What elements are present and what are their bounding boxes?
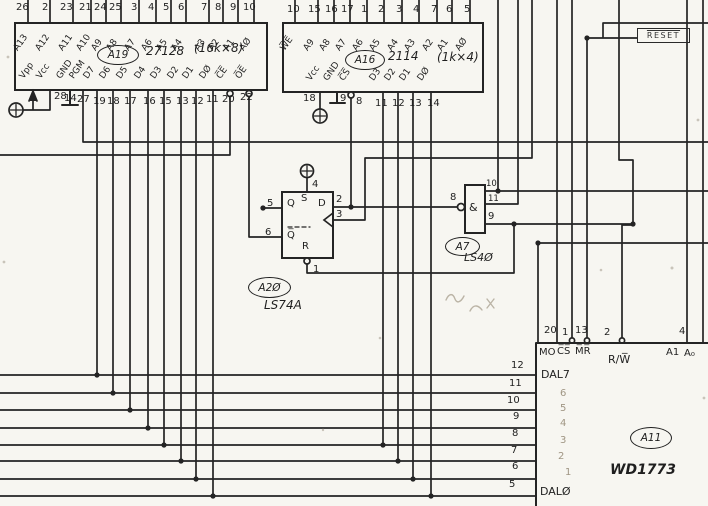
eprom-ref: A19 bbox=[97, 45, 139, 65]
ram-data-nets bbox=[383, 92, 431, 496]
pin-label: A1 bbox=[666, 348, 679, 358]
power-plus-icon bbox=[301, 165, 314, 178]
pin-number: 10 bbox=[287, 5, 300, 15]
pin-number: 4 bbox=[148, 3, 154, 13]
flipflop-part: LS74A bbox=[264, 299, 302, 311]
rw-net bbox=[619, 0, 633, 338]
eprom-part: 27128 bbox=[146, 45, 184, 57]
pin-number: 3 bbox=[336, 210, 342, 220]
pin-number: 16 bbox=[325, 5, 338, 15]
pin-number: 19 bbox=[93, 97, 106, 107]
pin-number: 18 bbox=[107, 97, 120, 107]
pin-number: 9 bbox=[488, 212, 494, 222]
pin-number: 4 bbox=[312, 180, 318, 190]
pin-number: 10 bbox=[486, 180, 497, 189]
pin-number: 20 bbox=[222, 95, 235, 105]
pin-label: M̅R̅ bbox=[575, 347, 591, 357]
pin-number: 9 bbox=[230, 3, 236, 13]
fdc-wires bbox=[536, 0, 708, 506]
pin-number: 24 bbox=[94, 3, 107, 13]
pin-label: 6 bbox=[560, 389, 566, 399]
ff-r-label: R bbox=[302, 242, 309, 252]
pin-number: 12 bbox=[392, 99, 405, 109]
pin-number: 22 bbox=[240, 93, 253, 103]
ram-part: 2114 bbox=[388, 50, 419, 62]
ff-d-label: D bbox=[318, 199, 326, 209]
pin-label: MO bbox=[539, 348, 556, 358]
reset-frame: RESET bbox=[637, 28, 690, 43]
pin-number: 17 bbox=[124, 97, 137, 107]
pin-number: 8 bbox=[356, 97, 362, 107]
pin-number: 3 bbox=[131, 3, 137, 13]
pin-label: A₀ bbox=[684, 349, 695, 359]
pin-number: 1 bbox=[361, 5, 367, 15]
pin-number: 8 bbox=[512, 429, 518, 439]
pin-number: 16 bbox=[143, 97, 156, 107]
pin-number: 6 bbox=[265, 228, 271, 238]
pin-number: 8 bbox=[450, 193, 456, 203]
nand-gate-symbol: & bbox=[469, 202, 478, 213]
pin-number: 25 bbox=[109, 3, 122, 13]
pin-label: 4 bbox=[560, 419, 566, 429]
pin-number: 11 bbox=[375, 99, 388, 109]
pin-number: 7 bbox=[201, 3, 207, 13]
ff-reset-net bbox=[307, 224, 514, 273]
pin-number: 6 bbox=[446, 5, 452, 15]
pin-number: 14 bbox=[64, 94, 77, 104]
pin-number: 9 bbox=[513, 412, 519, 422]
pin-number: 8 bbox=[215, 3, 221, 13]
pin-number: 2 bbox=[604, 328, 610, 338]
pin-number: 14 bbox=[427, 99, 440, 109]
pin-number: 18 bbox=[303, 94, 316, 104]
flipflop-ref: A2Ø bbox=[248, 277, 291, 298]
ff-s-label: S bbox=[301, 194, 307, 204]
pin-number: 23 bbox=[60, 3, 73, 13]
pin-number: 11 bbox=[509, 379, 522, 389]
pin-number: 11 bbox=[206, 95, 219, 105]
pin-number: 2 bbox=[42, 3, 48, 13]
pin-number: 15 bbox=[308, 5, 321, 15]
ram-capacity: (1k×4) bbox=[437, 51, 479, 63]
pin-number: 4 bbox=[413, 5, 419, 15]
pin-number: 1 bbox=[562, 328, 568, 338]
pin-number: 5 bbox=[464, 5, 470, 15]
pin-label: 1 bbox=[565, 468, 571, 478]
ff-qbar-label: Q̅ bbox=[287, 231, 295, 241]
pin-number: 11 bbox=[488, 195, 499, 204]
nand-part: LS4Ø bbox=[464, 252, 493, 263]
pin-number: 20 bbox=[544, 326, 557, 336]
pin-number: 12 bbox=[511, 361, 524, 371]
eprom-data-nets bbox=[97, 90, 213, 496]
pin-number: 27 bbox=[77, 95, 90, 105]
pin-label: C̅S̅ bbox=[557, 347, 570, 357]
eprom-capacity: (16k×8) bbox=[194, 42, 243, 54]
pin-number: 5 bbox=[163, 3, 169, 13]
vpp-arrow-icon bbox=[29, 91, 37, 101]
pin-number: 7 bbox=[511, 446, 517, 456]
oe-net bbox=[249, 97, 282, 237]
pin-number: 13 bbox=[575, 326, 588, 336]
pin-number: 13 bbox=[176, 97, 189, 107]
pin-number: 10 bbox=[243, 3, 256, 13]
pin-label: 3 bbox=[560, 436, 566, 446]
ff-q-label: Q bbox=[287, 199, 295, 209]
pin-number: 2 bbox=[378, 5, 384, 15]
data-bus-wires bbox=[0, 375, 536, 496]
pin-number: 3 bbox=[396, 5, 402, 15]
ram-ref: A16 bbox=[345, 50, 385, 70]
pin-number: 12 bbox=[191, 97, 204, 107]
pin-number: 10 bbox=[507, 396, 520, 406]
pin-number: 17 bbox=[341, 5, 354, 15]
pin-number: 9 bbox=[340, 94, 346, 104]
clock-net bbox=[333, 0, 532, 220]
pin-label: 2 bbox=[558, 452, 564, 462]
pin-number: 6 bbox=[178, 3, 184, 13]
pin-number: 2 bbox=[336, 195, 342, 205]
pin-label: R/W̅ bbox=[608, 354, 630, 365]
fdc-part: WD1773 bbox=[610, 463, 676, 477]
pin-number: 7 bbox=[431, 5, 437, 15]
pencil-smudge bbox=[446, 295, 494, 311]
power-plus-icon bbox=[9, 103, 23, 117]
clock-wedge-icon bbox=[324, 213, 333, 227]
nand-in2-net bbox=[485, 0, 518, 204]
pin-label: DALØ bbox=[540, 486, 571, 497]
pin-number: 1 bbox=[313, 265, 319, 275]
schematic-page: 26 2 23 21 24 25 3 4 5 6 7 8 9 10 A13 A1… bbox=[0, 0, 708, 506]
power-plus-icon bbox=[313, 109, 327, 123]
pin-number: 13 bbox=[409, 99, 422, 109]
pin-number: 26 bbox=[16, 3, 29, 13]
fdc-ref: A11 bbox=[630, 427, 672, 449]
pin-number: 5 bbox=[267, 199, 273, 209]
pin-number: 21 bbox=[79, 3, 92, 13]
pin-number: 4 bbox=[679, 327, 685, 337]
pin-label: DAL7 bbox=[541, 369, 570, 380]
pin-number: 6 bbox=[512, 462, 518, 472]
pin-number: 15 bbox=[159, 97, 172, 107]
pin-label: 5 bbox=[560, 404, 566, 414]
pin-number: 5 bbox=[509, 480, 515, 490]
